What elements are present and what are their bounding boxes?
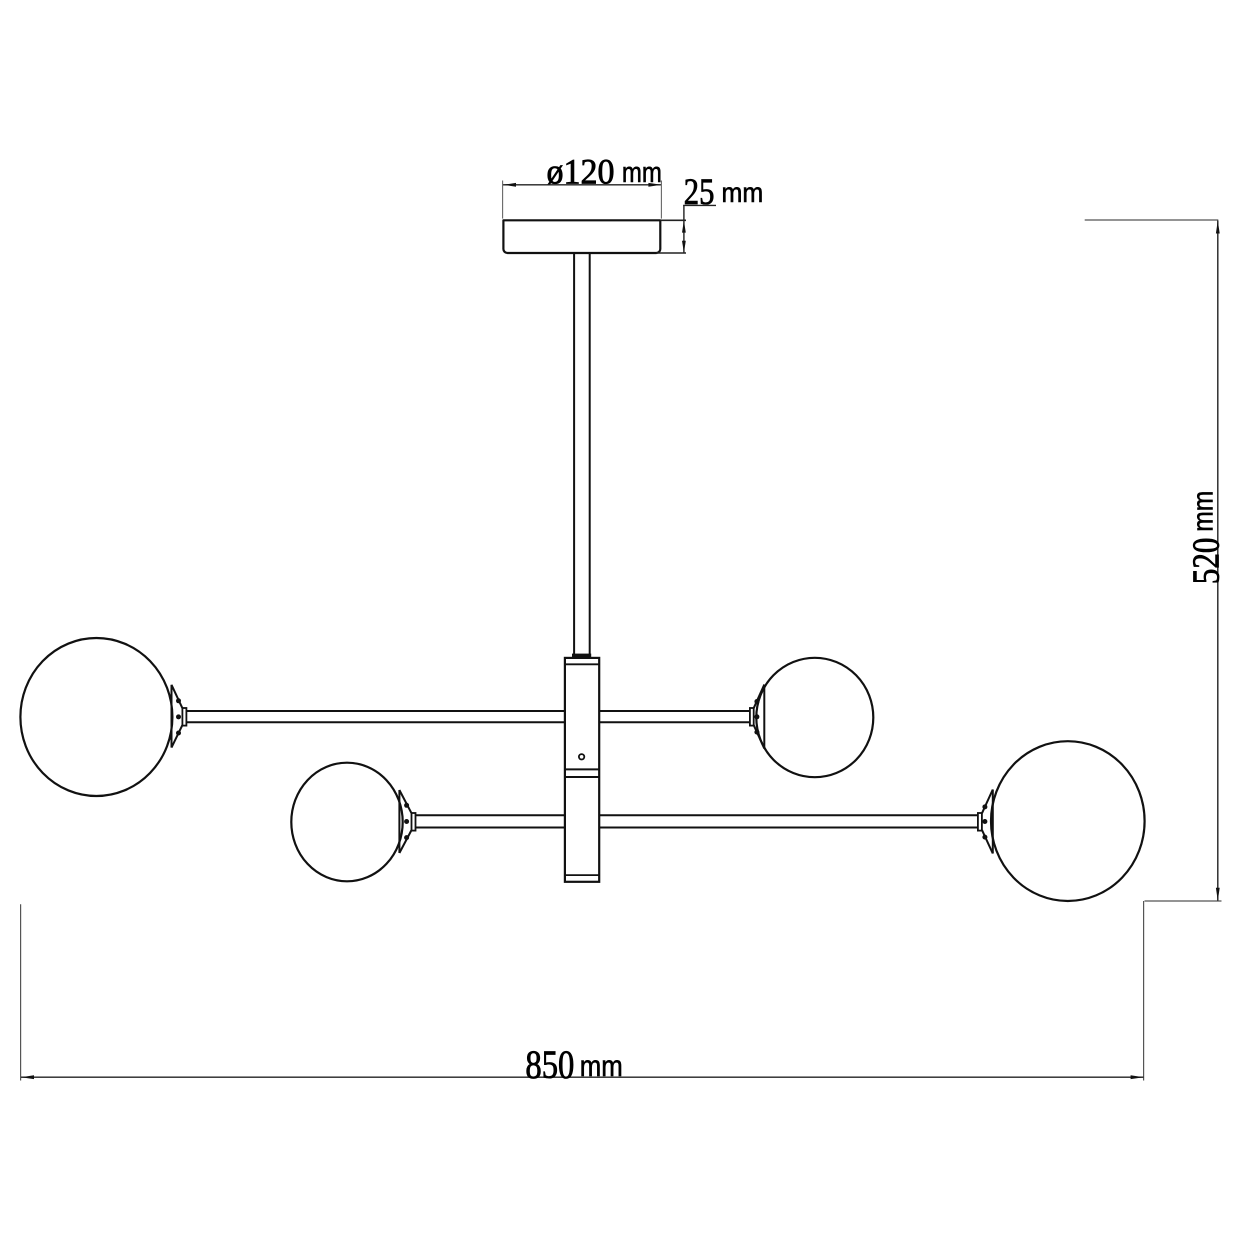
svg-text:mm: mm xyxy=(1187,491,1219,532)
svg-text:ø120: ø120 xyxy=(547,152,615,192)
svg-text:850: 850 xyxy=(525,1042,574,1087)
svg-text:mm: mm xyxy=(580,1050,623,1083)
svg-text:mm: mm xyxy=(722,177,764,208)
svg-text:520: 520 xyxy=(1186,538,1228,585)
svg-text:25: 25 xyxy=(684,172,715,213)
